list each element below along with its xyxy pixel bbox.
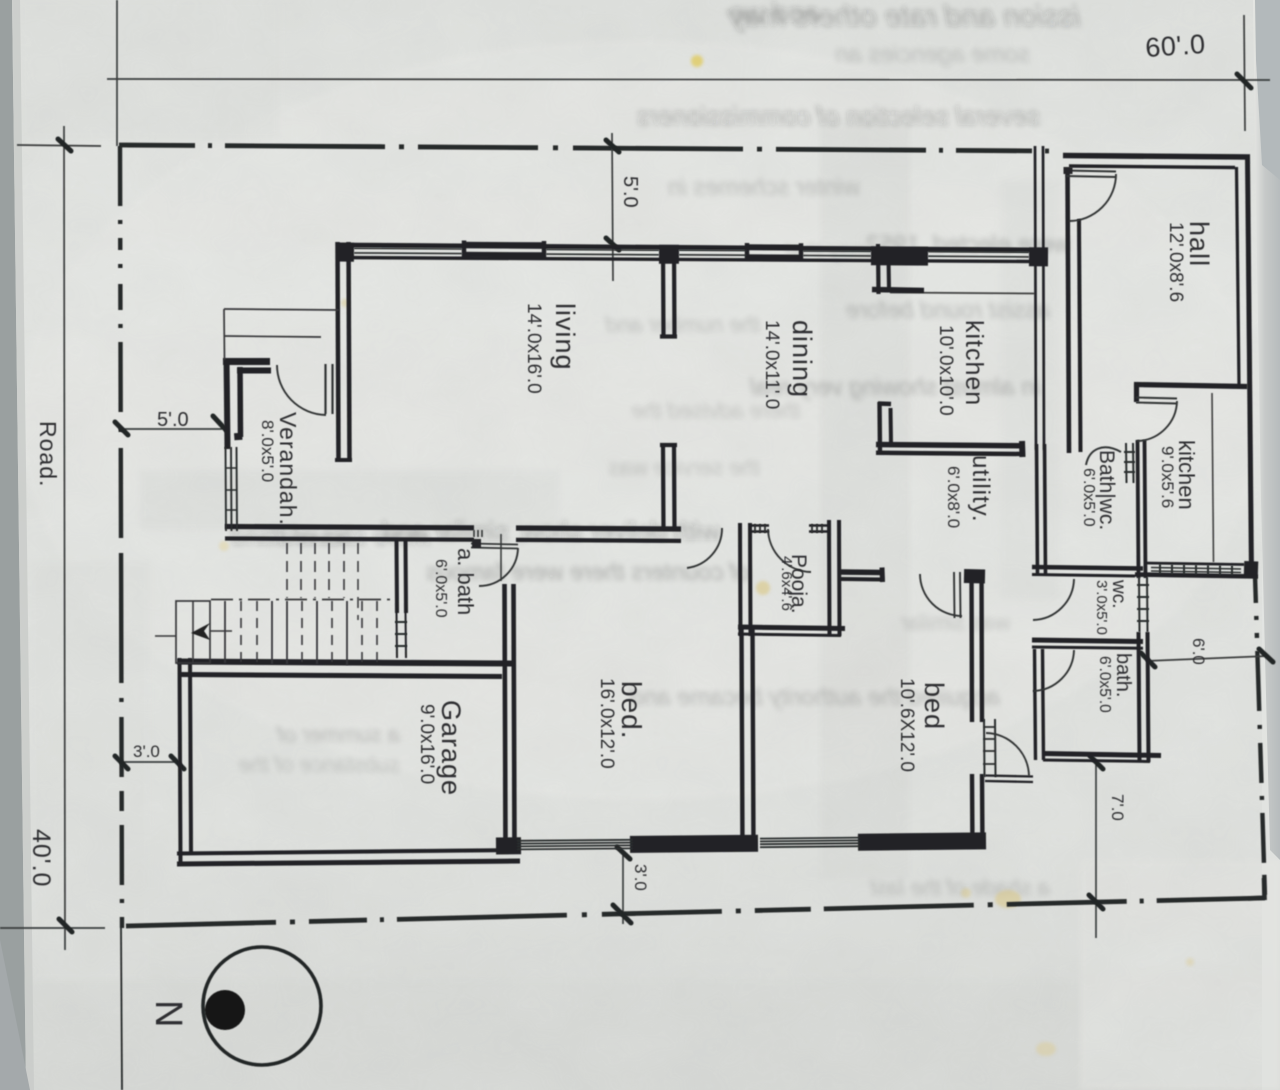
svg-text:a shade of the last: a shade of the last [869, 875, 1050, 900]
svg-text:6'.0: 6'.0 [1189, 638, 1208, 665]
svg-text:N: N [147, 1000, 189, 1028]
svg-text:5'.0: 5'.0 [619, 176, 641, 208]
svg-text:14'.0x16'.0: 14'.0x16'.0 [523, 303, 544, 394]
svg-text:bed: bed [919, 682, 949, 730]
svg-text:7'.0: 7'.0 [1108, 794, 1127, 821]
svg-text:10'.6X12'.0: 10'.6X12'.0 [896, 678, 917, 772]
svg-text:5'.0: 5'.0 [157, 409, 189, 431]
svg-text:Bath|wc.: Bath|wc. [1095, 450, 1118, 530]
svg-text:9'.0x16'.0: 9'.0x16'.0 [416, 704, 437, 784]
svg-text:utility.: utility. [967, 455, 994, 523]
svg-text:substance of the: substance of the [239, 752, 400, 777]
svg-text:14'.0x11'.0: 14'.0x11'.0 [761, 320, 782, 409]
svg-text:Garage: Garage [436, 700, 466, 796]
svg-text:a. bath: a. bath [453, 548, 478, 615]
svg-text:12'.0x8'.6: 12'.0x8'.6 [1165, 222, 1186, 302]
svg-text:40'.0: 40'.0 [27, 829, 55, 887]
svg-text:10'.0x10'.0: 10'.0x10'.0 [935, 325, 956, 416]
svg-text:6'.0x5'.0: 6'.0x5'.0 [1080, 468, 1097, 527]
svg-text:Road.: Road. [35, 421, 61, 487]
svg-text:6'.0x5'.0: 6'.0x5'.0 [432, 559, 449, 618]
svg-text:living: living [550, 303, 580, 371]
svg-text:3'.0: 3'.0 [631, 864, 650, 891]
svg-text:some agencies an: some agencies an [835, 41, 1030, 68]
svg-text:wc.: wc. [1108, 579, 1129, 609]
svg-text:3'.0: 3'.0 [133, 742, 160, 761]
svg-text:dining: dining [787, 320, 817, 398]
svg-text:several selection of commissio: several selection of commissioners [637, 101, 1040, 131]
svg-text:60'.0: 60'.0 [1144, 29, 1206, 63]
svg-text:bath.: bath. [1112, 653, 1134, 697]
svg-text:4'.6x4'.6: 4'.6x4'.6 [778, 556, 795, 611]
svg-text:Verandah.: Verandah. [275, 412, 301, 526]
svg-text:9'.0x5'.6: 9'.0x5'.6 [1158, 446, 1177, 508]
svg-text:6'.0x5'.0: 6'.0x5'.0 [1096, 656, 1113, 713]
svg-text:assist round before: assist round before [846, 297, 1050, 324]
svg-text:and we: and we [730, 0, 820, 28]
svg-text:the number and: the number and [605, 312, 760, 337]
svg-text:16'.0x12'.0: 16'.0x12'.0 [596, 678, 617, 769]
svg-text:winter schemes in: winter schemes in [668, 174, 860, 201]
svg-text:hall: hall [1184, 221, 1214, 267]
svg-text:8'.0x5'.0: 8'.0x5'.0 [258, 420, 277, 482]
svg-text:a summer of: a summer of [275, 722, 400, 747]
svg-text:bed.: bed. [616, 681, 647, 740]
svg-text:kitchen: kitchen [960, 320, 988, 406]
svg-text:3'.0x5'.0: 3'.0x5'.0 [1093, 580, 1110, 635]
svg-text:the service was: the service was [608, 455, 760, 480]
svg-text:6'.0x8'.0: 6'.0x8'.0 [944, 466, 963, 528]
